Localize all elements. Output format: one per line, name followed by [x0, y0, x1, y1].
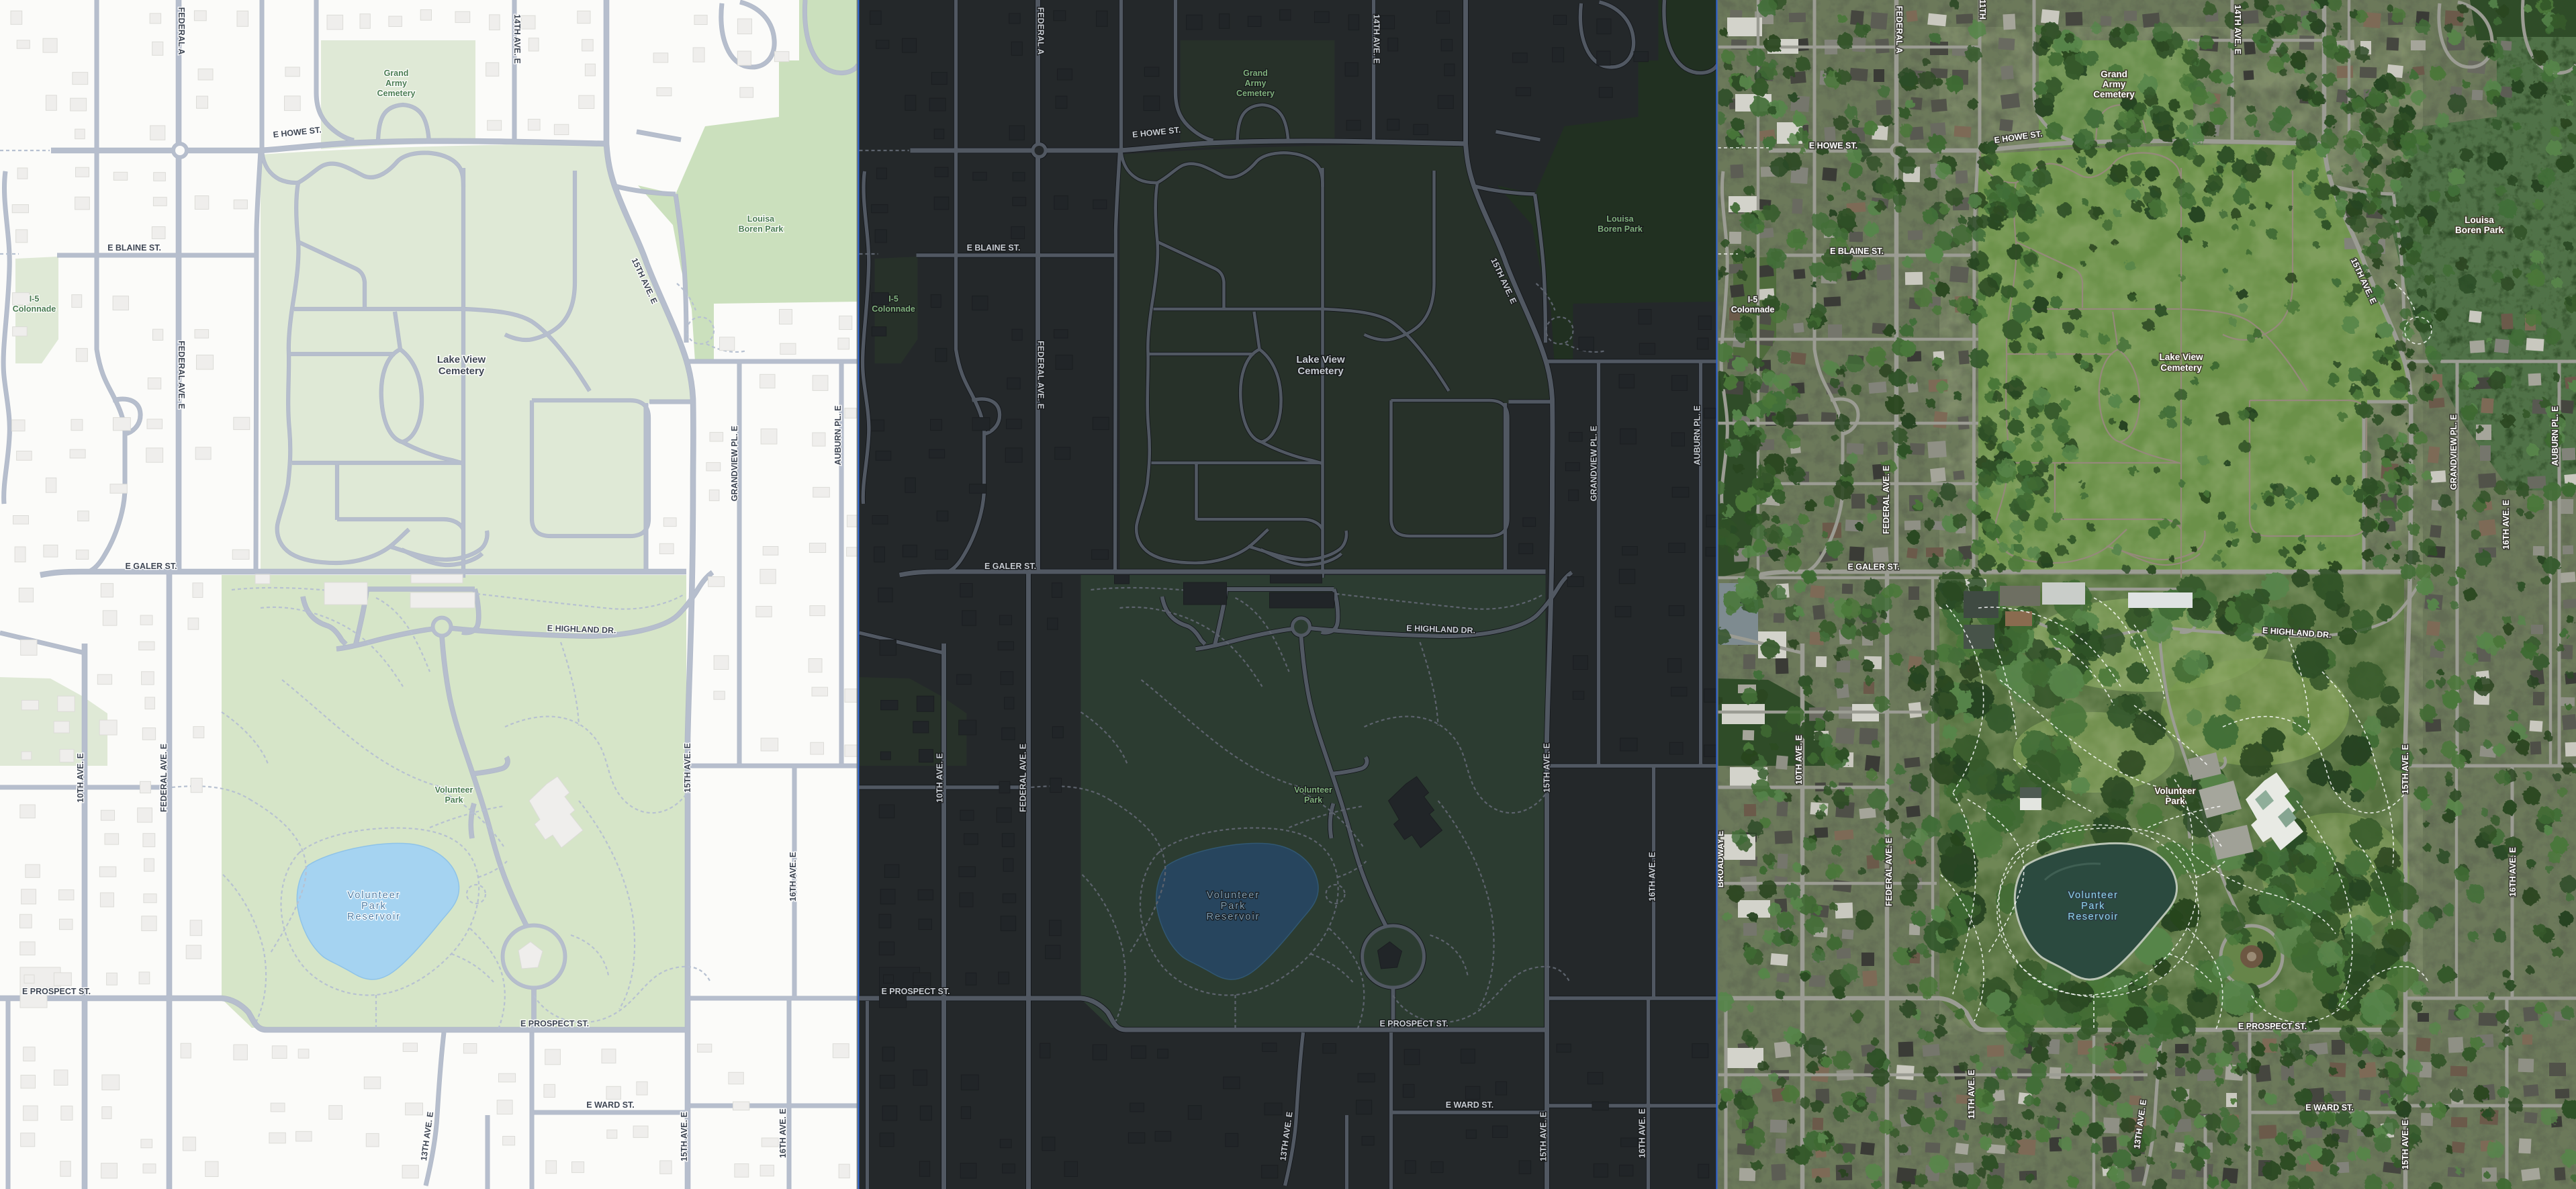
svg-text:Louisa: Louisa	[2465, 215, 2494, 225]
svg-text:E GALER ST.: E GALER ST.	[1847, 562, 1899, 572]
svg-text:GRANDVIEW PL. E: GRANDVIEW PL. E	[2449, 414, 2458, 490]
svg-text:Cemetery: Cemetery	[2160, 363, 2202, 373]
svg-text:E BLAINE ST.: E BLAINE ST.	[1830, 247, 1884, 256]
svg-text:FEDERAL A: FEDERAL A	[1894, 6, 1904, 54]
svg-text:Cemetery: Cemetery	[2093, 89, 2135, 99]
svg-text:FEDERAL AVE. E: FEDERAL AVE. E	[1884, 838, 1894, 906]
svg-text:E HOWE ST.: E HOWE ST.	[1809, 141, 1857, 150]
svg-text:Army: Army	[2103, 79, 2126, 89]
svg-text:E WARD ST.: E WARD ST.	[2305, 1103, 2354, 1112]
svg-text:FEDERAL AVE. E: FEDERAL AVE. E	[1882, 466, 1891, 534]
svg-text:Park: Park	[2081, 901, 2105, 912]
svg-text:15TH AVE. E: 15TH AVE. E	[2401, 744, 2410, 794]
svg-text:E PROSPECT ST.: E PROSPECT ST.	[2238, 1022, 2307, 1031]
svg-text:14TH AVE. E: 14TH AVE. E	[2233, 5, 2242, 54]
svg-text:Volunteer: Volunteer	[2068, 890, 2119, 901]
svg-text:Reservoir: Reservoir	[2068, 912, 2119, 922]
svg-text:11TH AVE. E: 11TH AVE. E	[1967, 1070, 1976, 1119]
svg-text:Colonnade: Colonnade	[1731, 305, 1775, 314]
svg-text:11TH: 11TH	[1978, 0, 1987, 19]
svg-text:Grand: Grand	[2101, 69, 2127, 79]
svg-text:10TH AVE. E: 10TH AVE. E	[1794, 735, 1804, 785]
svg-text:I-5: I-5	[1748, 295, 1758, 304]
svg-text:15TH AVE. E: 15TH AVE. E	[2401, 1120, 2410, 1170]
svg-text:16TH AVE. E: 16TH AVE. E	[2508, 847, 2518, 897]
svg-text:Park: Park	[2165, 796, 2185, 806]
svg-text:16TH AVE. E: 16TH AVE. E	[2501, 500, 2511, 549]
svg-text:Lake View: Lake View	[2159, 352, 2203, 362]
svg-text:AUBURN PL. E: AUBURN PL. E	[2550, 406, 2560, 466]
svg-text:Volunteer: Volunteer	[2154, 786, 2196, 796]
svg-text:Boren Park: Boren Park	[2455, 225, 2504, 235]
